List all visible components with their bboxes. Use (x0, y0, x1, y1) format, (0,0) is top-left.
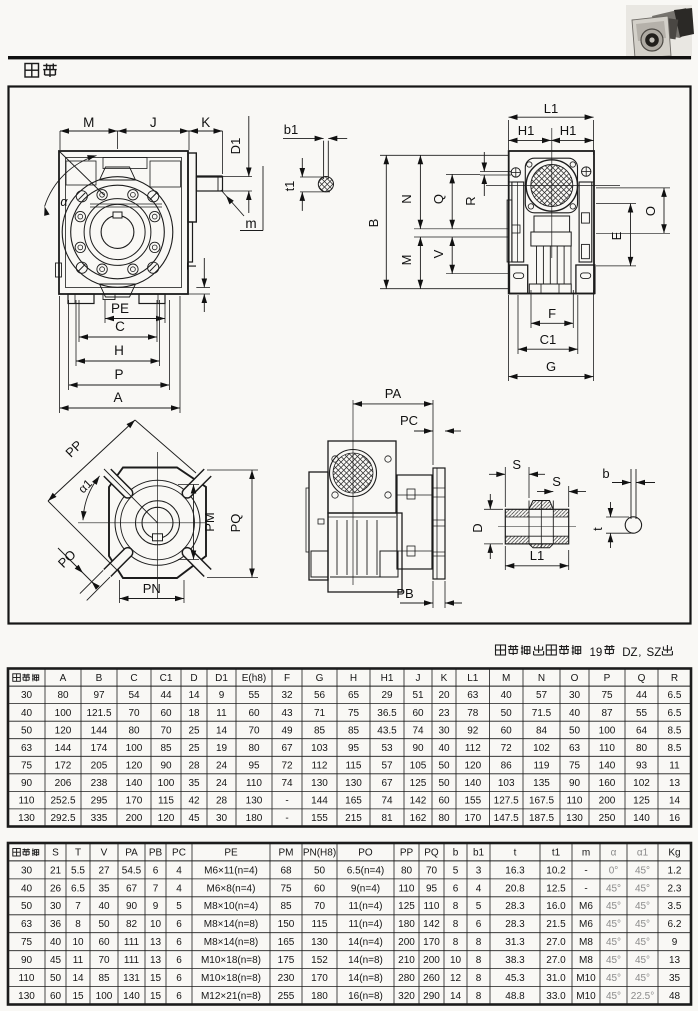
svg-text:11: 11 (669, 761, 680, 772)
svg-text:100: 100 (96, 991, 113, 1002)
svg-text:15: 15 (150, 973, 162, 984)
svg-text:10: 10 (72, 937, 84, 948)
svg-text:27.0: 27.0 (546, 937, 566, 948)
svg-text:142: 142 (410, 796, 427, 807)
svg-text:6.5: 6.5 (668, 708, 682, 719)
svg-text:115: 115 (312, 919, 328, 930)
svg-text:16.3: 16.3 (505, 865, 525, 876)
svg-text:130: 130 (311, 778, 328, 789)
svg-text:110: 110 (599, 743, 615, 754)
svg-text:M: M (502, 673, 510, 684)
svg-text:95: 95 (248, 761, 260, 772)
svg-text:50: 50 (50, 973, 62, 984)
svg-text:L1: L1 (467, 673, 479, 684)
svg-text:18: 18 (188, 708, 200, 719)
svg-text:M6: M6 (579, 901, 593, 912)
svg-text:35: 35 (669, 973, 681, 984)
svg-text:45°: 45° (635, 919, 650, 930)
svg-text:M: M (399, 255, 414, 266)
svg-text:45°: 45° (606, 973, 621, 984)
svg-text:28.3: 28.3 (505, 901, 525, 912)
svg-text:45.3: 45.3 (505, 973, 525, 984)
svg-text:PA: PA (385, 386, 402, 401)
svg-text:M8: M8 (579, 937, 593, 948)
svg-text:130: 130 (311, 937, 328, 948)
svg-text:45°: 45° (635, 973, 650, 984)
svg-text:238: 238 (91, 778, 108, 789)
svg-text:33.0: 33.0 (546, 991, 566, 1002)
svg-text:45°: 45° (635, 955, 650, 966)
svg-text:22.5°: 22.5° (631, 991, 654, 1002)
svg-text:147.5: 147.5 (494, 813, 519, 824)
svg-text:O: O (643, 206, 658, 216)
svg-text:A: A (113, 390, 122, 405)
svg-text:165: 165 (278, 937, 295, 948)
svg-text:J: J (416, 673, 421, 684)
svg-text:93: 93 (636, 761, 648, 772)
svg-text:111: 111 (124, 937, 140, 948)
svg-text:-: - (584, 865, 587, 876)
svg-text:140: 140 (123, 991, 140, 1002)
svg-text:70: 70 (314, 901, 326, 912)
svg-text:14: 14 (72, 973, 84, 984)
svg-text:67: 67 (381, 778, 393, 789)
svg-text:44: 44 (636, 690, 648, 701)
svg-text:27: 27 (98, 865, 110, 876)
svg-text:-: - (584, 883, 587, 894)
svg-text:9(n=4): 9(n=4) (351, 883, 380, 894)
svg-text:48: 48 (669, 991, 681, 1002)
svg-text:121.5: 121.5 (86, 708, 111, 719)
svg-text:125: 125 (398, 901, 415, 912)
svg-text:14: 14 (450, 991, 462, 1002)
svg-text:85: 85 (314, 725, 326, 736)
svg-text:50: 50 (438, 778, 450, 789)
svg-text:20: 20 (438, 690, 450, 701)
svg-text:174: 174 (91, 743, 108, 754)
svg-text:167.5: 167.5 (529, 796, 554, 807)
svg-text:1.2: 1.2 (668, 865, 682, 876)
svg-text:82: 82 (126, 919, 138, 930)
svg-text:75: 75 (280, 883, 292, 894)
svg-text:295: 295 (91, 796, 108, 807)
svg-text:67: 67 (281, 743, 293, 754)
svg-text:71: 71 (314, 708, 326, 719)
svg-text:M6×8(n=4): M6×8(n=4) (207, 883, 256, 894)
svg-text:200: 200 (398, 937, 415, 948)
svg-text:45°: 45° (635, 883, 650, 894)
svg-text:N: N (538, 673, 545, 684)
svg-text:85: 85 (348, 725, 360, 736)
svg-text:D1: D1 (228, 138, 243, 155)
svg-text:50: 50 (98, 919, 110, 930)
svg-text:100: 100 (55, 708, 72, 719)
svg-text:C1: C1 (160, 673, 173, 684)
svg-text:252.5: 252.5 (50, 796, 75, 807)
svg-text:M8: M8 (579, 955, 593, 966)
svg-text:t1: t1 (552, 848, 561, 859)
svg-text:DZ: DZ (622, 647, 637, 659)
svg-text:C: C (130, 673, 137, 684)
svg-text:60: 60 (438, 796, 450, 807)
svg-text:4: 4 (176, 883, 182, 894)
svg-text:255: 255 (278, 991, 295, 1002)
svg-text:PA: PA (125, 848, 138, 859)
svg-text:57: 57 (381, 761, 393, 772)
svg-text:32: 32 (281, 690, 293, 701)
svg-text:125: 125 (633, 796, 650, 807)
svg-text:H1: H1 (381, 673, 394, 684)
svg-text:R: R (671, 673, 678, 684)
svg-text:127.5: 127.5 (494, 796, 519, 807)
svg-text:24: 24 (216, 761, 228, 772)
svg-text:6.5: 6.5 (668, 690, 682, 701)
svg-text:b: b (602, 466, 609, 481)
svg-text:260: 260 (423, 973, 440, 984)
svg-text:13: 13 (669, 778, 681, 789)
svg-text:63: 63 (569, 743, 581, 754)
svg-text:90: 90 (569, 778, 581, 789)
svg-text:4: 4 (476, 883, 482, 894)
svg-text:200: 200 (423, 955, 440, 966)
svg-text:45°: 45° (606, 919, 621, 930)
svg-text:12.5: 12.5 (546, 883, 566, 894)
svg-text:50: 50 (438, 761, 450, 772)
svg-text:86: 86 (501, 761, 513, 772)
svg-text:H1: H1 (518, 123, 535, 138)
svg-text:115: 115 (158, 796, 174, 807)
svg-text:23: 23 (438, 708, 450, 719)
svg-text:PM: PM (279, 848, 294, 859)
svg-text:70: 70 (426, 865, 438, 876)
svg-text:155: 155 (464, 796, 481, 807)
svg-text:142: 142 (423, 919, 440, 930)
svg-text:E(h8): E(h8) (242, 673, 266, 684)
svg-text:2.3: 2.3 (668, 883, 682, 894)
svg-text:65: 65 (348, 690, 360, 701)
svg-text:60: 60 (248, 708, 260, 719)
svg-text:75: 75 (348, 708, 360, 719)
svg-text:S: S (52, 848, 59, 859)
svg-text:54.5: 54.5 (122, 865, 142, 876)
svg-text:120: 120 (464, 761, 481, 772)
svg-text:110: 110 (19, 796, 35, 807)
svg-text:40: 40 (438, 743, 450, 754)
svg-text:30: 30 (50, 901, 62, 912)
svg-text:35: 35 (98, 883, 110, 894)
svg-text:68: 68 (280, 865, 292, 876)
svg-text:67: 67 (126, 883, 138, 894)
svg-text:90: 90 (160, 761, 172, 772)
svg-text:45°: 45° (606, 991, 621, 1002)
svg-text:9: 9 (219, 690, 225, 701)
svg-text:B: B (96, 673, 103, 684)
svg-text:200: 200 (126, 813, 143, 824)
svg-text:140: 140 (599, 761, 616, 772)
svg-text:140: 140 (126, 778, 143, 789)
svg-text:10: 10 (150, 919, 162, 930)
svg-text:110: 110 (424, 901, 440, 912)
svg-text:PP: PP (400, 848, 414, 859)
svg-text:172: 172 (55, 761, 72, 772)
svg-text:70: 70 (98, 955, 110, 966)
svg-text:-: - (285, 796, 288, 807)
svg-text:200: 200 (599, 796, 616, 807)
svg-text:165: 165 (345, 796, 362, 807)
svg-text:50: 50 (569, 725, 581, 736)
svg-text:J: J (150, 115, 157, 130)
svg-text:63: 63 (21, 743, 33, 754)
svg-text:V: V (101, 848, 108, 859)
svg-text:50: 50 (501, 708, 513, 719)
svg-text:M6×11(n=4): M6×11(n=4) (204, 865, 258, 876)
svg-text:187.5: 187.5 (529, 813, 554, 824)
svg-text:8: 8 (476, 973, 482, 984)
svg-text:14(n=8): 14(n=8) (348, 973, 383, 984)
svg-text:28.3: 28.3 (505, 919, 525, 930)
svg-text:54: 54 (128, 690, 140, 701)
svg-text:G: G (316, 673, 324, 684)
svg-text:75: 75 (21, 937, 33, 948)
svg-text:K: K (201, 115, 210, 130)
svg-text:119: 119 (534, 761, 550, 772)
svg-text:100: 100 (158, 778, 175, 789)
svg-text:170: 170 (311, 973, 328, 984)
svg-text:11(n=4): 11(n=4) (348, 919, 382, 930)
svg-text:102: 102 (533, 743, 550, 754)
svg-text:53: 53 (381, 743, 393, 754)
svg-text:85: 85 (98, 973, 110, 984)
svg-text:63: 63 (21, 919, 33, 930)
svg-text:PQ: PQ (228, 514, 243, 533)
svg-text:30: 30 (438, 725, 450, 736)
svg-text:10.2: 10.2 (546, 865, 566, 876)
svg-text:150: 150 (278, 919, 295, 930)
svg-text:144: 144 (55, 743, 72, 754)
svg-text:16(n=8): 16(n=8) (348, 991, 383, 1002)
svg-text:28: 28 (188, 761, 200, 772)
svg-text:125: 125 (410, 778, 427, 789)
svg-text:8: 8 (476, 955, 482, 966)
svg-text:55: 55 (248, 690, 260, 701)
svg-text:F: F (284, 673, 290, 684)
svg-text:K: K (441, 673, 448, 684)
svg-text:t: t (590, 527, 605, 531)
svg-text:8.5: 8.5 (668, 725, 682, 736)
svg-text:6.2: 6.2 (668, 919, 682, 930)
svg-text:6.5: 6.5 (71, 883, 85, 894)
svg-text:m: m (582, 848, 590, 859)
svg-text:14(n=4): 14(n=4) (348, 937, 383, 948)
svg-text:9: 9 (153, 901, 159, 912)
svg-text:80: 80 (401, 865, 413, 876)
svg-text:45°: 45° (635, 937, 650, 948)
svg-text:F: F (548, 306, 556, 321)
svg-text:9: 9 (672, 937, 678, 948)
svg-text:280: 280 (398, 973, 415, 984)
svg-text:6: 6 (153, 865, 159, 876)
svg-text:L1: L1 (544, 101, 558, 116)
svg-text:6: 6 (176, 973, 182, 984)
svg-text:8: 8 (476, 991, 482, 1002)
svg-text:87: 87 (601, 708, 613, 719)
svg-text:6: 6 (176, 919, 182, 930)
svg-text:45°: 45° (606, 955, 621, 966)
svg-text:80: 80 (128, 725, 140, 736)
svg-text:11: 11 (216, 708, 227, 719)
svg-text:19: 19 (590, 647, 603, 659)
svg-text:206: 206 (55, 778, 72, 789)
svg-text:S: S (552, 474, 561, 489)
svg-text:60: 60 (314, 883, 326, 894)
svg-text:6.5(n=4): 6.5(n=4) (347, 865, 385, 876)
svg-text:b1: b1 (284, 122, 298, 137)
svg-text:43: 43 (281, 708, 293, 719)
svg-text:5.5: 5.5 (71, 865, 85, 876)
svg-text:19: 19 (216, 743, 228, 754)
svg-text:M8×14(n=8): M8×14(n=8) (204, 937, 258, 948)
svg-text:74: 74 (381, 796, 393, 807)
svg-text:144: 144 (91, 725, 108, 736)
svg-text:C1: C1 (540, 332, 557, 347)
svg-text:49: 49 (281, 725, 293, 736)
svg-text:α1: α1 (637, 848, 649, 859)
svg-text:α: α (60, 195, 68, 209)
svg-text:130: 130 (345, 778, 362, 789)
svg-text:，: ， (638, 649, 646, 658)
svg-text:5: 5 (476, 901, 482, 912)
svg-text:A: A (60, 673, 67, 684)
svg-text:170: 170 (423, 937, 440, 948)
svg-text:8: 8 (453, 919, 459, 930)
svg-text:80: 80 (248, 743, 260, 754)
svg-text:45°: 45° (606, 937, 621, 948)
svg-text:160: 160 (599, 778, 616, 789)
svg-text:50: 50 (314, 865, 326, 876)
svg-text:90: 90 (21, 778, 33, 789)
svg-text:85: 85 (160, 743, 172, 754)
svg-text:95: 95 (348, 743, 360, 754)
svg-text:30: 30 (569, 690, 581, 701)
svg-text:6: 6 (453, 883, 459, 894)
svg-text:180: 180 (246, 813, 263, 824)
svg-text:102: 102 (633, 778, 650, 789)
svg-text:G: G (546, 359, 556, 374)
svg-text:40: 40 (98, 901, 110, 912)
svg-text:144: 144 (311, 796, 328, 807)
svg-text:M10×18(n=8): M10×18(n=8) (201, 973, 261, 984)
svg-text:R: R (463, 196, 478, 205)
svg-text:6: 6 (176, 937, 182, 948)
svg-text:45°: 45° (635, 901, 650, 912)
svg-text:80: 80 (636, 743, 648, 754)
svg-text:14: 14 (188, 690, 200, 701)
svg-text:21: 21 (50, 865, 62, 876)
svg-text:5: 5 (176, 901, 182, 912)
svg-text:H: H (350, 673, 357, 684)
svg-text:75: 75 (21, 761, 33, 772)
svg-text:PO: PO (358, 848, 373, 859)
svg-text:56: 56 (314, 690, 326, 701)
svg-text:120: 120 (158, 813, 175, 824)
svg-text:45°: 45° (606, 883, 621, 894)
svg-text:14: 14 (669, 796, 681, 807)
svg-text:Q: Q (431, 194, 446, 204)
svg-text:10: 10 (450, 955, 462, 966)
svg-text:105: 105 (410, 761, 427, 772)
svg-text:115: 115 (346, 761, 362, 772)
svg-text:120: 120 (126, 761, 143, 772)
svg-text:292.5: 292.5 (50, 813, 75, 824)
svg-text:81: 81 (381, 813, 393, 824)
svg-text:63: 63 (467, 690, 479, 701)
svg-text:D: D (190, 673, 197, 684)
svg-text:60: 60 (50, 991, 62, 1002)
svg-text:60: 60 (160, 708, 172, 719)
svg-text:28: 28 (216, 796, 228, 807)
svg-text:T: T (75, 848, 81, 859)
svg-text:V: V (431, 249, 446, 258)
svg-text:320: 320 (398, 991, 415, 1002)
svg-text:PE: PE (111, 301, 129, 316)
svg-text:162: 162 (410, 813, 427, 824)
svg-text:16: 16 (669, 813, 681, 824)
svg-text:6: 6 (176, 955, 182, 966)
svg-text:C: C (115, 319, 125, 334)
svg-text:152: 152 (311, 955, 328, 966)
svg-text:230: 230 (278, 973, 295, 984)
svg-text:31.3: 31.3 (505, 937, 525, 948)
svg-text:130: 130 (566, 813, 583, 824)
svg-text:L1: L1 (530, 548, 544, 563)
svg-text:3.5: 3.5 (668, 901, 682, 912)
svg-text:30: 30 (216, 813, 228, 824)
svg-text:N: N (399, 194, 414, 203)
svg-text:250: 250 (599, 813, 616, 824)
svg-text:78: 78 (467, 708, 479, 719)
svg-text:70: 70 (248, 725, 260, 736)
svg-text:16.0: 16.0 (546, 901, 566, 912)
svg-text:72: 72 (501, 743, 513, 754)
svg-text:Q: Q (638, 673, 646, 684)
svg-text:b1: b1 (473, 848, 485, 859)
svg-text:P: P (604, 673, 611, 684)
svg-text:112: 112 (312, 761, 328, 772)
svg-text:103: 103 (498, 778, 515, 789)
svg-text:8: 8 (453, 901, 459, 912)
svg-text:26: 26 (50, 883, 62, 894)
svg-text:PE: PE (224, 848, 238, 859)
svg-text:B: B (366, 219, 381, 228)
svg-text:92: 92 (467, 725, 479, 736)
svg-text:15: 15 (150, 991, 162, 1002)
svg-text:110: 110 (399, 883, 415, 894)
svg-text:40: 40 (50, 937, 62, 948)
svg-text:SZ: SZ (647, 647, 662, 659)
svg-text:M10×18(n=8): M10×18(n=8) (201, 955, 261, 966)
svg-text:-: - (285, 813, 288, 824)
svg-text:43.5: 43.5 (377, 725, 397, 736)
svg-text:100: 100 (599, 725, 616, 736)
svg-text:7: 7 (153, 883, 159, 894)
svg-text:60: 60 (412, 708, 424, 719)
svg-text:103: 103 (311, 743, 328, 754)
svg-text:50: 50 (21, 901, 33, 912)
svg-text:95: 95 (426, 883, 438, 894)
svg-text:155: 155 (311, 813, 328, 824)
svg-text:PC: PC (400, 413, 418, 428)
svg-text:13: 13 (150, 937, 162, 948)
